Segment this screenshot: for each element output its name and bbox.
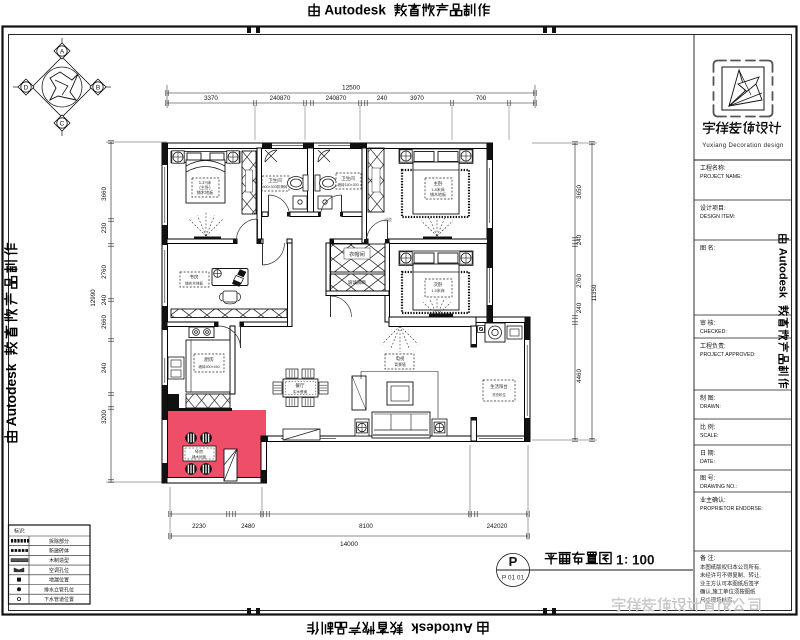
svg-text:过道: 过道: [384, 217, 392, 222]
svg-text:背景墙: 背景墙: [394, 362, 406, 367]
svg-text:2760: 2760: [576, 274, 583, 288]
svg-text:新建砖体: 新建砖体: [49, 548, 69, 555]
svg-text:C: C: [60, 120, 65, 127]
svg-text:230: 230: [101, 222, 108, 233]
svg-text:240870: 240870: [270, 95, 291, 102]
svg-text:餐厅: 餐厅: [295, 382, 305, 389]
svg-text:Autodesk: Autodesk: [4, 363, 19, 426]
svg-text:实木餐桌: 实木餐桌: [293, 389, 308, 394]
svg-text:2230: 2230: [192, 523, 206, 530]
svg-text:标识:: 标识:: [14, 528, 25, 535]
svg-text:墙砖150×300: 墙砖150×300: [337, 182, 358, 187]
svg-text:1.5米床: 1.5米床: [431, 287, 445, 293]
svg-text:Autodesk: Autodesk: [411, 620, 473, 635]
svg-text:3370: 3370: [204, 95, 218, 102]
svg-text:次卧: 次卧: [433, 281, 443, 288]
svg-text:工程名称:: 工程名称:: [700, 164, 726, 172]
svg-text:拆除部分: 拆除部分: [49, 538, 69, 545]
svg-text:墙砖300×450: 墙砖300×450: [198, 364, 219, 369]
svg-text:Autodesk: Autodesk: [324, 3, 386, 18]
svg-text:B: B: [96, 84, 100, 91]
svg-text:700: 700: [476, 95, 487, 102]
svg-text:Yuxiang Decoration design: Yuxiang Decoration design: [702, 143, 783, 149]
svg-text:琴房: 琴房: [195, 448, 203, 455]
svg-text:业主确认:: 业主确认:: [700, 496, 726, 504]
svg-text:排水立管孔位: 排水立管孔位: [44, 586, 74, 593]
svg-text:1: 1: [616, 553, 624, 568]
svg-text:铺木地板: 铺木地板: [197, 189, 215, 196]
svg-text:生活阳台: 生活阳台: [490, 383, 508, 390]
svg-text:240: 240: [101, 362, 108, 373]
svg-text:240: 240: [576, 302, 583, 313]
svg-text:木制造型: 木制造型: [49, 557, 69, 564]
svg-text:下水管道位置: 下水管道位置: [44, 596, 74, 603]
svg-text:备 注:: 备 注:: [700, 554, 716, 562]
svg-text:4460: 4460: [576, 369, 583, 383]
svg-text:地漏位置: 地漏位置: [49, 577, 69, 584]
svg-text:卫生间: 卫生间: [268, 177, 282, 184]
svg-text:工程负责:: 工程负责:: [700, 342, 726, 350]
svg-text:日 期:: 日 期:: [700, 449, 716, 457]
svg-text:A: A: [60, 48, 65, 55]
svg-text:DATE:: DATE:: [700, 459, 715, 465]
svg-text:铺木地板: 铺木地板: [192, 454, 207, 459]
svg-text:PROJECT NAME:: PROJECT NAME:: [700, 174, 742, 180]
svg-text:审 核:: 审 核:: [700, 319, 716, 327]
svg-text::: :: [624, 552, 628, 567]
svg-text:CHECKED:: CHECKED:: [700, 329, 727, 335]
svg-text:DESIGN ITEM:: DESIGN ITEM:: [700, 214, 735, 220]
svg-text:制 图:: 制 图:: [700, 394, 716, 402]
svg-text:240870: 240870: [326, 95, 347, 102]
svg-text:Autodesk: Autodesk: [777, 248, 789, 299]
svg-text:240: 240: [101, 294, 108, 305]
svg-text:11350: 11350: [591, 284, 598, 301]
svg-text:14000: 14000: [340, 541, 358, 548]
svg-text:242020: 242020: [487, 523, 508, 530]
svg-text:100: 100: [632, 553, 655, 568]
svg-text:图 名:: 图 名:: [700, 244, 716, 252]
svg-text:PROJECT APPROVED:: PROJECT APPROVED:: [700, 352, 756, 358]
svg-text:衣帽间: 衣帽间: [349, 250, 365, 258]
svg-text:设计项目:: 设计项目:: [700, 204, 726, 212]
svg-text:240: 240: [576, 234, 583, 245]
svg-text:铺木地板: 铺木地板: [430, 191, 446, 197]
svg-text:P: P: [509, 554, 518, 569]
svg-text:DRAWING NO.:: DRAWING NO.:: [700, 484, 737, 490]
svg-text:3660: 3660: [101, 187, 108, 201]
svg-text:SCALE:: SCALE:: [700, 433, 718, 439]
svg-text:12500: 12500: [342, 85, 360, 92]
svg-text:卫生间: 卫生间: [341, 175, 355, 182]
svg-text:洗衣机位: 洗衣机位: [492, 392, 506, 397]
svg-text:厨房: 厨房: [204, 356, 214, 363]
svg-text:业主方认可本图纸后签字: 业主方认可本图纸后签字: [700, 579, 759, 587]
svg-text:12990: 12990: [90, 289, 97, 307]
svg-text:8100: 8100: [359, 523, 373, 530]
svg-text:3200: 3200: [101, 410, 108, 424]
svg-text:2480: 2480: [241, 523, 255, 530]
svg-text:P 01 01: P 01 01: [502, 575, 525, 582]
svg-text:DRAWN:: DRAWN:: [700, 404, 721, 410]
svg-text:玻璃隔断: 玻璃隔断: [348, 279, 366, 286]
svg-text:2660: 2660: [101, 315, 108, 329]
svg-text:3970: 3970: [410, 95, 424, 102]
svg-text:铺实木地板: 铺实木地板: [185, 281, 203, 286]
svg-text:3650: 3650: [576, 185, 583, 199]
svg-text:300×300防滑砖: 300×300防滑砖: [263, 184, 288, 189]
svg-text:电视: 电视: [396, 355, 405, 362]
svg-text:书房: 书房: [189, 274, 199, 281]
svg-text:2760: 2760: [101, 265, 108, 279]
svg-text:240: 240: [377, 95, 388, 102]
svg-text:确认,施工单位须按图纸: 确认,施工单位须按图纸: [700, 588, 756, 596]
svg-text:主卧: 主卧: [433, 180, 443, 187]
svg-text:未经许可不得复制、转让,: 未经许可不得复制、转让,: [700, 571, 761, 579]
svg-text:本图纸版权归本公司所有,: 本图纸版权归本公司所有,: [700, 563, 761, 571]
svg-text:PROPRIETOR ENDORSE:: PROPRIETOR ENDORSE:: [700, 506, 763, 512]
svg-text:空调孔位: 空调孔位: [49, 567, 69, 574]
svg-text:图 号:: 图 号:: [700, 475, 716, 482]
svg-text:D: D: [24, 84, 29, 91]
svg-text:比 例:: 比 例:: [700, 423, 716, 431]
